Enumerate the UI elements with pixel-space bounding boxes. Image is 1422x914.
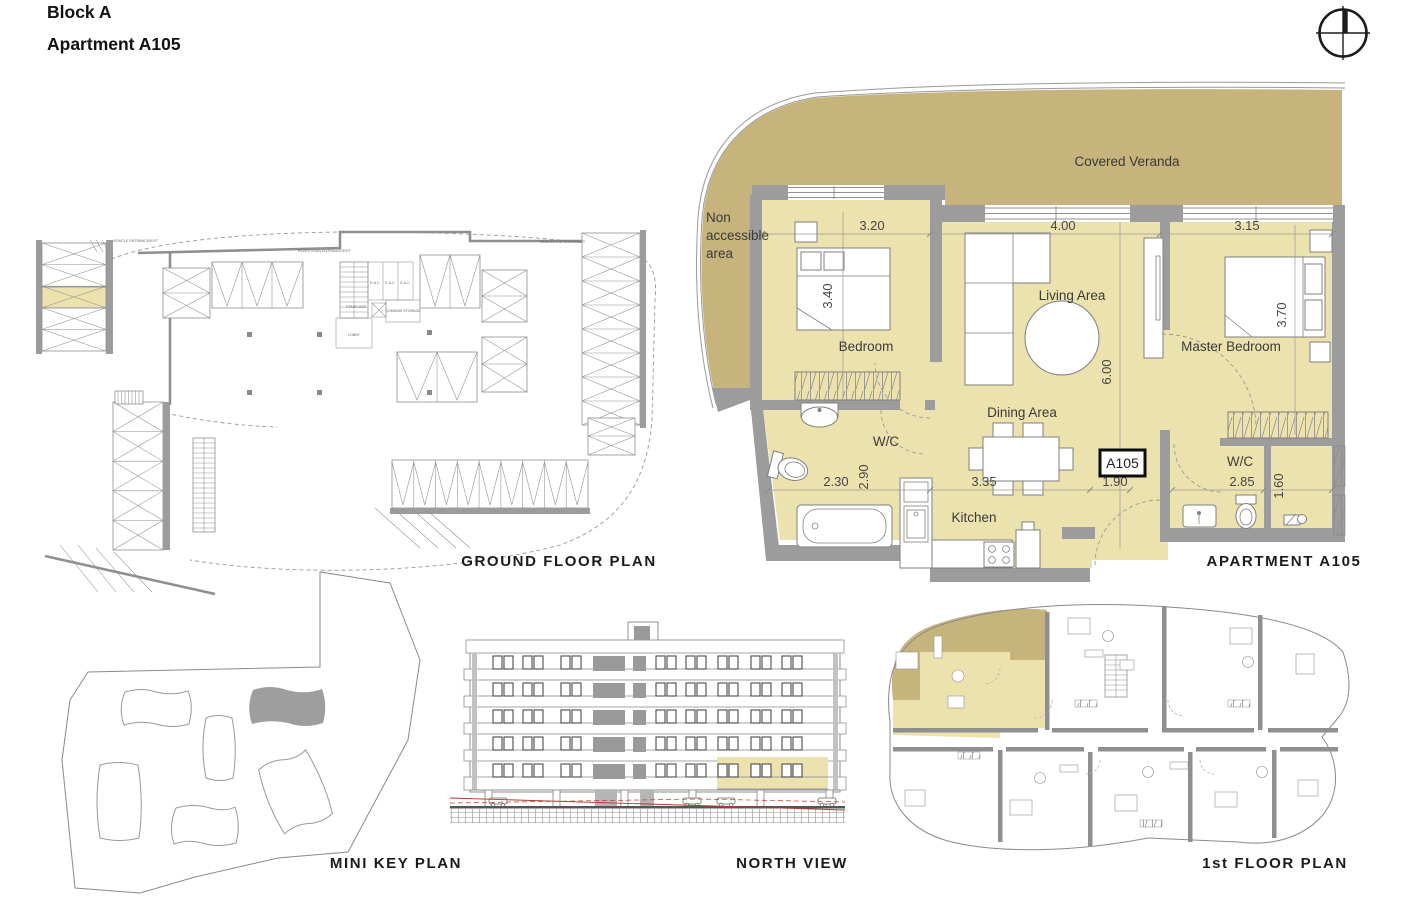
bedroom-label: Bedroom (839, 339, 894, 354)
living-area-label: Living Area (1039, 288, 1106, 303)
dim-bedroom-width: 3.20 (859, 218, 884, 233)
eac-label: E.A.C (385, 281, 395, 285)
master-bedroom-label: Master Bedroom (1181, 339, 1281, 354)
dim-shower-width: 1.60 (1271, 473, 1286, 498)
staircase-label: STAIRCASE (346, 305, 367, 309)
shower-fitting (1284, 514, 1307, 525)
wc2-toilet (1236, 495, 1256, 529)
non-accessible-label: Non (706, 210, 731, 225)
pedestrian-entrance-label: PEDESTRIAN ENTRANCE/EXIT (298, 249, 352, 253)
common-storage-label: COMMON STORAGE (385, 309, 421, 313)
wc-left-label: W/C (873, 434, 899, 449)
ground-level (450, 790, 845, 823)
ground-floor-plan: STAIRCASE LOBBY COMMON STORAGE E.A.C E.A… (30, 228, 660, 593)
dim-wc2-width: 2.85 (1229, 474, 1254, 489)
dim-master-width: 3.15 (1234, 218, 1259, 233)
dim-bedroom-depth: 3.40 (820, 283, 835, 308)
non-accessible-label: accessible (706, 228, 769, 243)
master-wardrobe (1228, 412, 1328, 438)
apartment-caption: APARTMENT A105 (1207, 553, 1362, 570)
mini-key-plan (60, 565, 460, 875)
living-round-table (1025, 301, 1099, 375)
apartment-a105-plan: 3.20 4.00 3.15 3.40 3.70 6.00 2.30 2.90 … (690, 80, 1350, 585)
non-accessible-label: area (706, 246, 734, 261)
dim-wc-depth: 2.90 (856, 464, 871, 489)
wc2-basin (1183, 505, 1216, 527)
stove (984, 542, 1014, 567)
kitchen-label: Kitchen (951, 510, 996, 525)
north-view-elevation (440, 610, 850, 850)
vehicle-entrance-label: VEHICLE ENTRANCE/EXIT (113, 239, 159, 243)
mini-key-caption: MINI KEY PLAN (330, 855, 462, 872)
bathtub (797, 505, 892, 547)
sheet-title-block: Block A (47, 2, 112, 23)
dim-wc-width: 2.30 (823, 474, 848, 489)
block-a-key-highlight (249, 687, 325, 726)
dim-living-depth: 6.00 (1099, 359, 1114, 384)
first-floor-caption: 1st FLOOR PLAN (1202, 855, 1348, 872)
ground-floor-caption: GROUND FLOOR PLAN (461, 553, 657, 570)
eac-label: E.A.C (400, 281, 410, 285)
dim-living-width: 4.00 (1050, 218, 1075, 233)
unit-badge: A105 (1100, 450, 1145, 476)
eac-label: E.A.C (370, 281, 380, 285)
first-floor-plan (870, 598, 1350, 858)
svg-text:A105: A105 (1106, 455, 1139, 471)
master-nightstand (1310, 230, 1332, 252)
bedroom-side-table (795, 222, 817, 242)
north-view-caption: NORTH VIEW (736, 855, 848, 872)
wc-right-label: W/C (1227, 454, 1253, 469)
tv-unit (1144, 238, 1163, 358)
wc1-basin (801, 403, 838, 427)
dim-dining-width: 3.35 (971, 474, 996, 489)
sheet-title-apartment: Apartment A105 (47, 34, 181, 55)
bedroom-window (788, 185, 884, 200)
master-nightstand (1310, 342, 1330, 362)
dining-area-label: Dining Area (987, 405, 1057, 420)
north-compass-icon (1312, 2, 1374, 64)
drawing-sheet: Block A Apartment A105 (0, 0, 1422, 914)
bedroom-wardrobe (795, 372, 900, 400)
vehicle-entrance-label: VEHICLE ENTRANCE/EXIT (540, 240, 586, 244)
lobby-label: LOBBY (348, 333, 361, 337)
dim-master-depth: 3.70 (1274, 302, 1289, 327)
bedroom-bed (797, 248, 890, 330)
covered-veranda-label: Covered Veranda (1074, 154, 1180, 169)
